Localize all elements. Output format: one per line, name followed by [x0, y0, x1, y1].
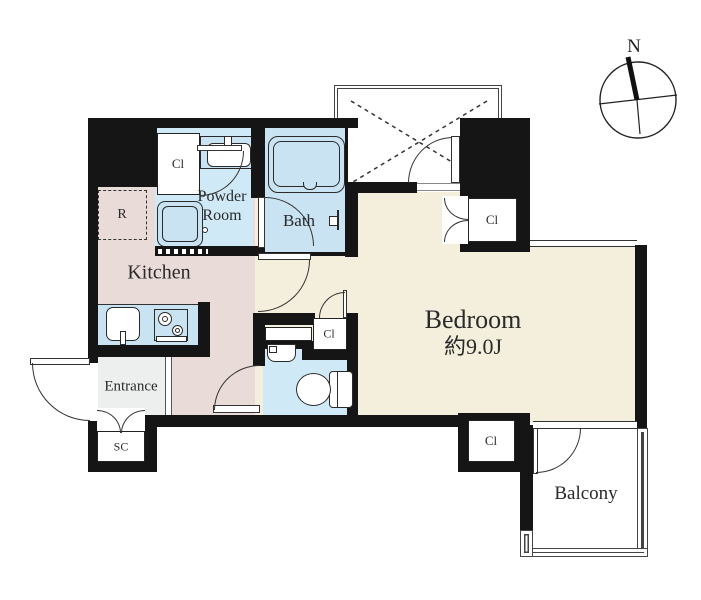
balcony-rail-right — [637, 428, 648, 557]
wall-under-closet-mid — [313, 350, 347, 360]
outside-mask-above-window — [530, 188, 637, 240]
bath-faucet-box — [329, 216, 338, 226]
refrigerator-label: R — [117, 207, 126, 223]
compass-north-label: N — [627, 36, 641, 57]
bathtub-inner — [273, 141, 340, 187]
washing-machine — [157, 201, 203, 247]
hall-door-leaf — [258, 253, 311, 260]
balcony-label: Balcony — [554, 483, 617, 505]
wall-bottom-main — [143, 415, 470, 427]
stove-grill — [156, 336, 187, 342]
bedroom-size-label: 約9.0J — [444, 329, 502, 361]
stove-burner-small-inner — [175, 328, 180, 333]
powder-room-label: Powder Room — [198, 187, 247, 225]
bath-door-leaf — [258, 197, 265, 248]
wall-bedroom-right — [635, 245, 647, 428]
washing-machine-inner — [162, 206, 198, 242]
powder-hatch-dashes — [158, 249, 208, 254]
toilet-bowl — [296, 373, 331, 406]
stove-burner-large — [158, 312, 172, 326]
wall-toilet-stub — [302, 343, 313, 360]
powder-knob — [202, 227, 208, 233]
wall-top-left-block — [88, 118, 157, 187]
powder-room-label-line1: Powder — [198, 187, 247, 206]
closet-top-label: Cl — [486, 212, 498, 228]
balcony-rail-left — [520, 530, 533, 557]
toilet-basin-faucet — [269, 346, 277, 353]
powder-room-label-line2: Room — [198, 206, 247, 225]
closet-powder-label: Cl — [172, 156, 184, 172]
kitchen-label: Kitchen — [127, 262, 190, 285]
closet-mid-label: Cl — [323, 327, 334, 342]
void-door-leaf — [451, 136, 460, 183]
void-door-sill — [417, 183, 460, 191]
closet-bottom-label: Cl — [485, 433, 497, 449]
entrance-label: Entrance — [104, 379, 157, 396]
balcony-door-arc — [536, 428, 581, 473]
balcony-window-line — [583, 421, 637, 429]
entry-door-arc — [32, 363, 90, 421]
toilet-niche — [265, 327, 312, 341]
bath-label: Bath — [283, 211, 315, 231]
balcony-rail-bottom — [522, 548, 648, 557]
wall-counter-bottom — [88, 345, 210, 357]
floor-plan: Bedroom 約9.0J Kitchen Powder Room Bath E… — [0, 0, 701, 600]
wall-balcony-left — [520, 425, 533, 532]
toilet-tank — [329, 371, 353, 408]
compass: N — [588, 26, 688, 144]
entrance-step-line — [165, 357, 172, 417]
wall-left — [88, 187, 98, 363]
stove-burner-large-inner — [162, 316, 168, 322]
toilet-tank-divider — [337, 372, 338, 407]
wall-powder-bath-partition — [251, 126, 265, 198]
kitchen-faucet — [120, 331, 126, 345]
bedroom-top-window — [530, 240, 637, 247]
stove-burner-small — [172, 325, 183, 336]
wall-toilet-left — [253, 313, 265, 366]
compass-needle-thin — [637, 100, 640, 134]
compass-needle-thick — [628, 57, 637, 100]
wall-void-bottom — [345, 182, 417, 193]
shoe-closet-label: SC — [114, 440, 129, 455]
